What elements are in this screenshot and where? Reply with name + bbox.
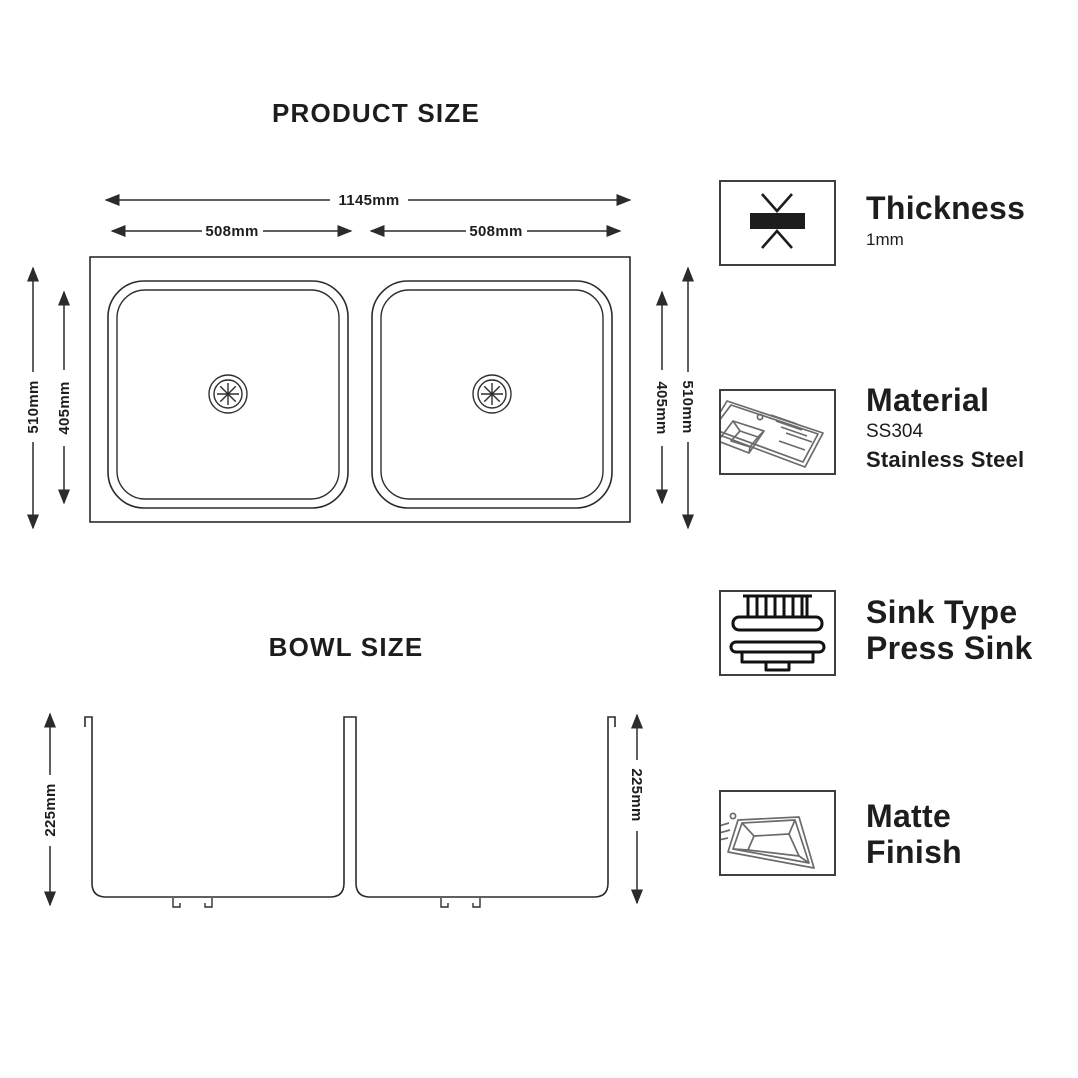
dim-right-bowl-width: 508mm (371, 223, 620, 240)
dim-left-inner-depth: 405mm (56, 292, 73, 503)
dim-left-bowl-width: 508mm (112, 223, 351, 240)
spec-sink-type-title: Sink Type (866, 594, 1078, 630)
spec-material: Material SS304 Stainless Steel (866, 382, 1078, 473)
product-plan-drawing: 1145mm 508mm 508mm (0, 170, 720, 550)
spec-sink-type-value: Press Sink (866, 630, 1078, 666)
dim-right-outer-depth: 510mm (679, 268, 696, 528)
press-sink-icon (719, 590, 836, 676)
dim-right-bowl-depth: 225mm (628, 715, 645, 903)
spec-thickness: Thickness 1mm (866, 190, 1078, 250)
spec-material-grade: SS304 (866, 421, 1078, 443)
matte-finish-icon (719, 790, 836, 876)
dim-right-outer-depth-label: 510mm (679, 380, 696, 433)
spec-finish: Matte Finish (866, 798, 1078, 870)
material-icon (719, 389, 836, 475)
dim-left-outer-depth-label: 510mm (25, 380, 42, 433)
spec-thickness-value: 1mm (866, 230, 1078, 250)
dim-right-bowl-depth-label: 225mm (628, 768, 645, 821)
sink-rim-outline (90, 257, 630, 522)
spec-thickness-title: Thickness (866, 190, 1078, 226)
spec-sink-type: Sink Type Press Sink (866, 594, 1078, 666)
right-drain-icon (473, 375, 511, 413)
spec-finish-value: Finish (866, 834, 1078, 870)
dim-left-inner-depth-label: 405mm (56, 381, 73, 434)
right-drain-stub (441, 898, 448, 907)
dim-right-inner-depth-label: 405mm (653, 381, 670, 434)
dim-overall-width-label: 1145mm (338, 192, 399, 209)
left-drain-icon (209, 375, 247, 413)
thickness-icon (719, 180, 836, 266)
bowl-profile (85, 717, 615, 907)
bowl-side-view-drawing: 225mm 225mm (0, 630, 720, 950)
dim-overall-width: 1145mm (106, 192, 630, 209)
spec-material-value: Stainless Steel (866, 447, 1078, 473)
dim-left-bowl-depth-label: 225mm (42, 783, 59, 836)
dim-left-bowl-depth: 225mm (42, 714, 59, 905)
spec-material-title: Material (866, 382, 1078, 418)
dim-left-outer-depth: 510mm (25, 268, 42, 528)
sink-top-view (90, 257, 630, 522)
spec-finish-title: Matte (866, 798, 1078, 834)
left-drain-stub (173, 898, 180, 907)
sink-spec-sheet: PRODUCT SIZE 1145mm 508mm 508mm (0, 0, 1078, 1078)
dim-left-bowl-width-label: 508mm (205, 223, 258, 240)
product-size-title: PRODUCT SIZE (0, 98, 752, 129)
dim-right-bowl-width-label: 508mm (469, 223, 522, 240)
dim-right-inner-depth: 405mm (653, 292, 670, 503)
